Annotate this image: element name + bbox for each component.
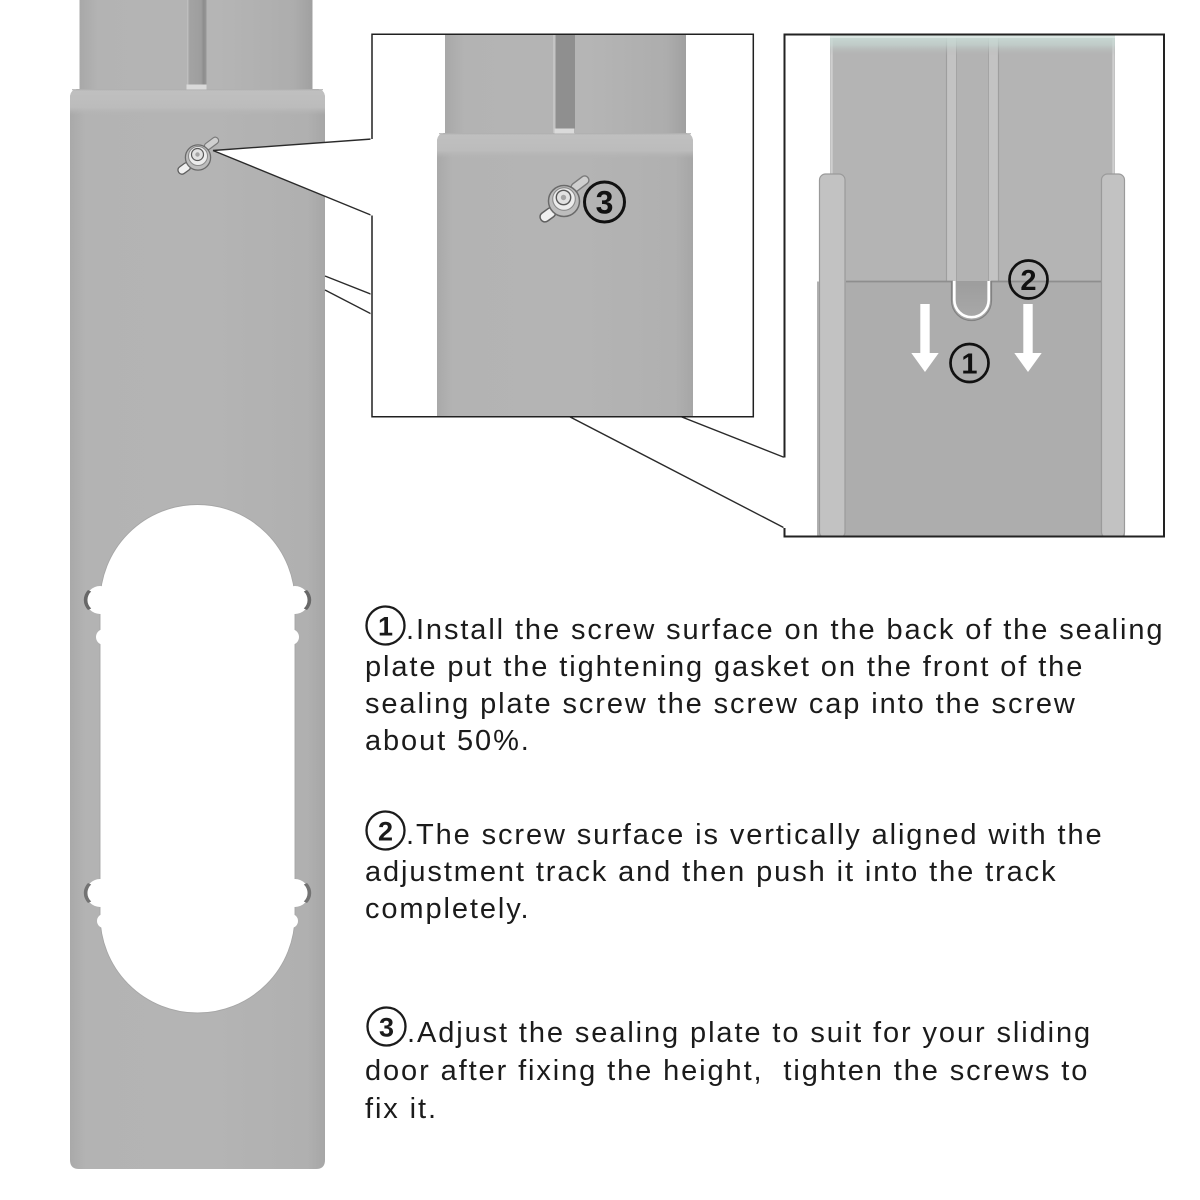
svg-text:2: 2 xyxy=(378,817,393,847)
svg-text:plate put the tightening gaske: plate put the tightening gasket on the f… xyxy=(365,651,1084,683)
svg-text:1: 1 xyxy=(378,612,393,642)
svg-text:adjustment track and then push: adjustment track and then push it into t… xyxy=(365,856,1057,888)
svg-text:2: 2 xyxy=(1020,265,1036,297)
svg-text:sealing plate screw the screw: sealing plate screw the screw cap into t… xyxy=(365,688,1077,720)
svg-text:about 50%.: about 50%. xyxy=(365,725,531,757)
svg-text:door after fixing the height,: door after fixing the height, tighten th… xyxy=(365,1055,1089,1087)
svg-text:3: 3 xyxy=(379,1013,394,1043)
svg-text:.Adjust the sealing plate to s: .Adjust the sealing plate to suit for yo… xyxy=(407,1017,1092,1049)
svg-text:fix it.: fix it. xyxy=(365,1093,438,1125)
svg-text:.The screw surface is vertical: .The screw surface is vertically aligned… xyxy=(406,819,1104,851)
svg-text:3: 3 xyxy=(596,185,614,221)
svg-text:completely.: completely. xyxy=(365,893,530,925)
svg-text:1: 1 xyxy=(961,349,977,381)
svg-text:.Install the screw surface on: .Install the screw surface on the back o… xyxy=(406,614,1164,646)
